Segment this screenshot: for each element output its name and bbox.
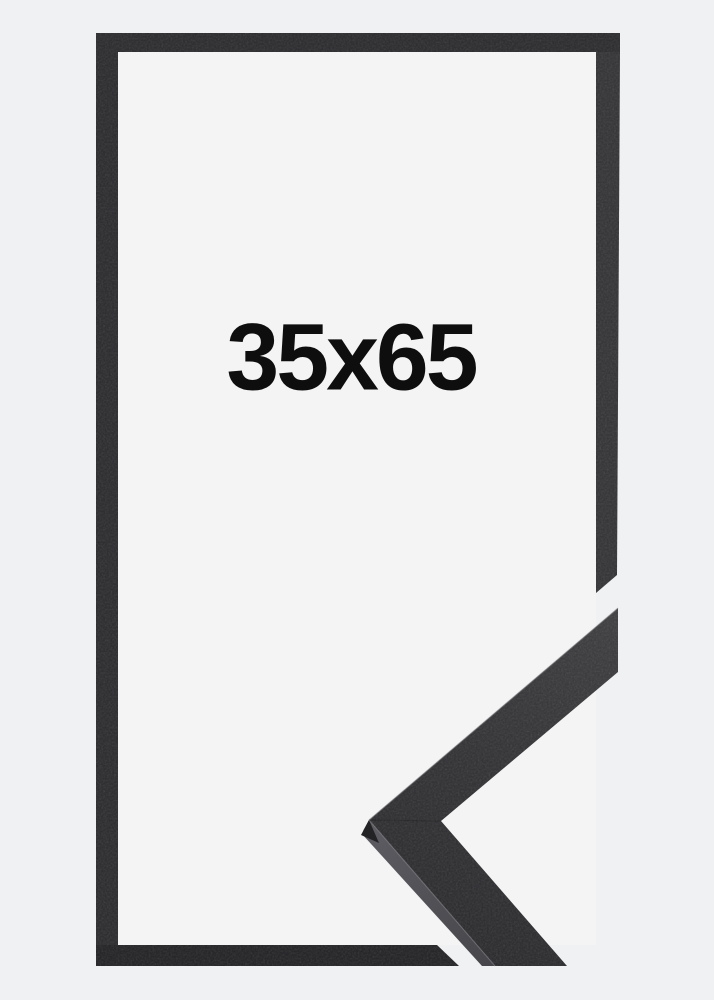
frame-inner-area	[118, 52, 596, 945]
product-image: 35x65	[0, 0, 714, 1000]
size-label: 35x65	[226, 311, 475, 406]
frame-size-mockup	[0, 0, 714, 1000]
